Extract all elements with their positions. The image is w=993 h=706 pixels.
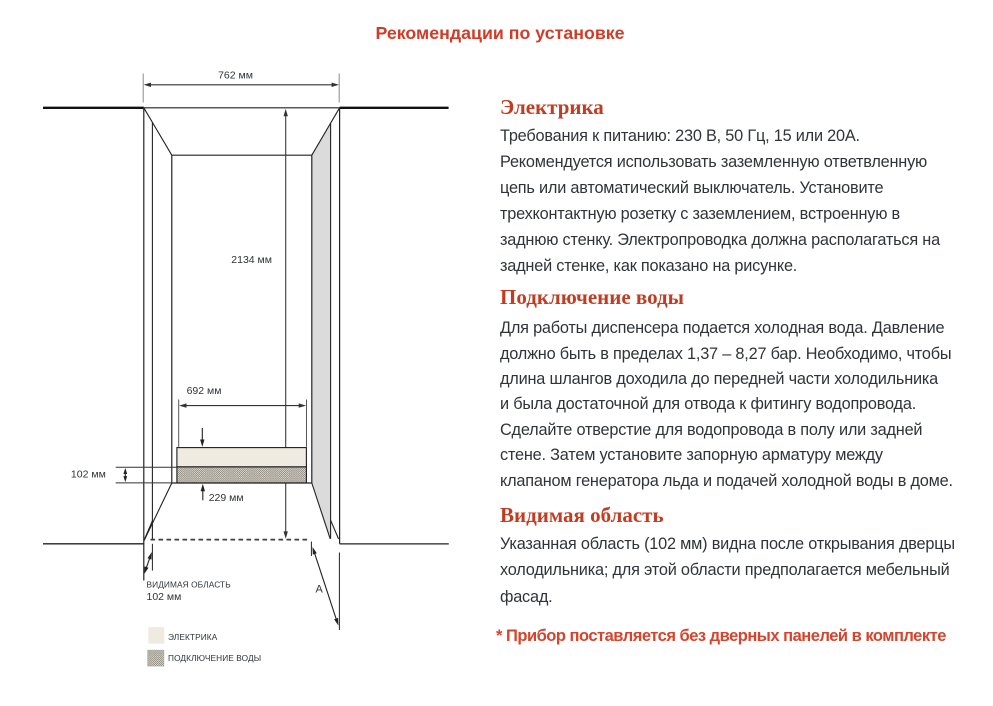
svg-text:ЭЛЕКТРИКА: ЭЛЕКТРИКА <box>168 632 218 642</box>
svg-text:102 мм: 102 мм <box>147 591 182 603</box>
svg-text:762 мм: 762 мм <box>218 70 253 82</box>
svg-text:2134 мм: 2134 мм <box>231 254 272 266</box>
svg-text:102 мм: 102 мм <box>71 468 106 480</box>
svg-text:А: А <box>316 583 324 595</box>
svg-text:ПОДКЛЮЧЕНИЕ ВОДЫ: ПОДКЛЮЧЕНИЕ ВОДЫ <box>168 653 261 663</box>
svg-text:229 мм: 229 мм <box>209 492 244 504</box>
svg-text:ВИДИМАЯ ОБЛАСТЬ: ВИДИМАЯ ОБЛАСТЬ <box>147 580 232 590</box>
svg-text:692 мм: 692 мм <box>187 385 222 397</box>
